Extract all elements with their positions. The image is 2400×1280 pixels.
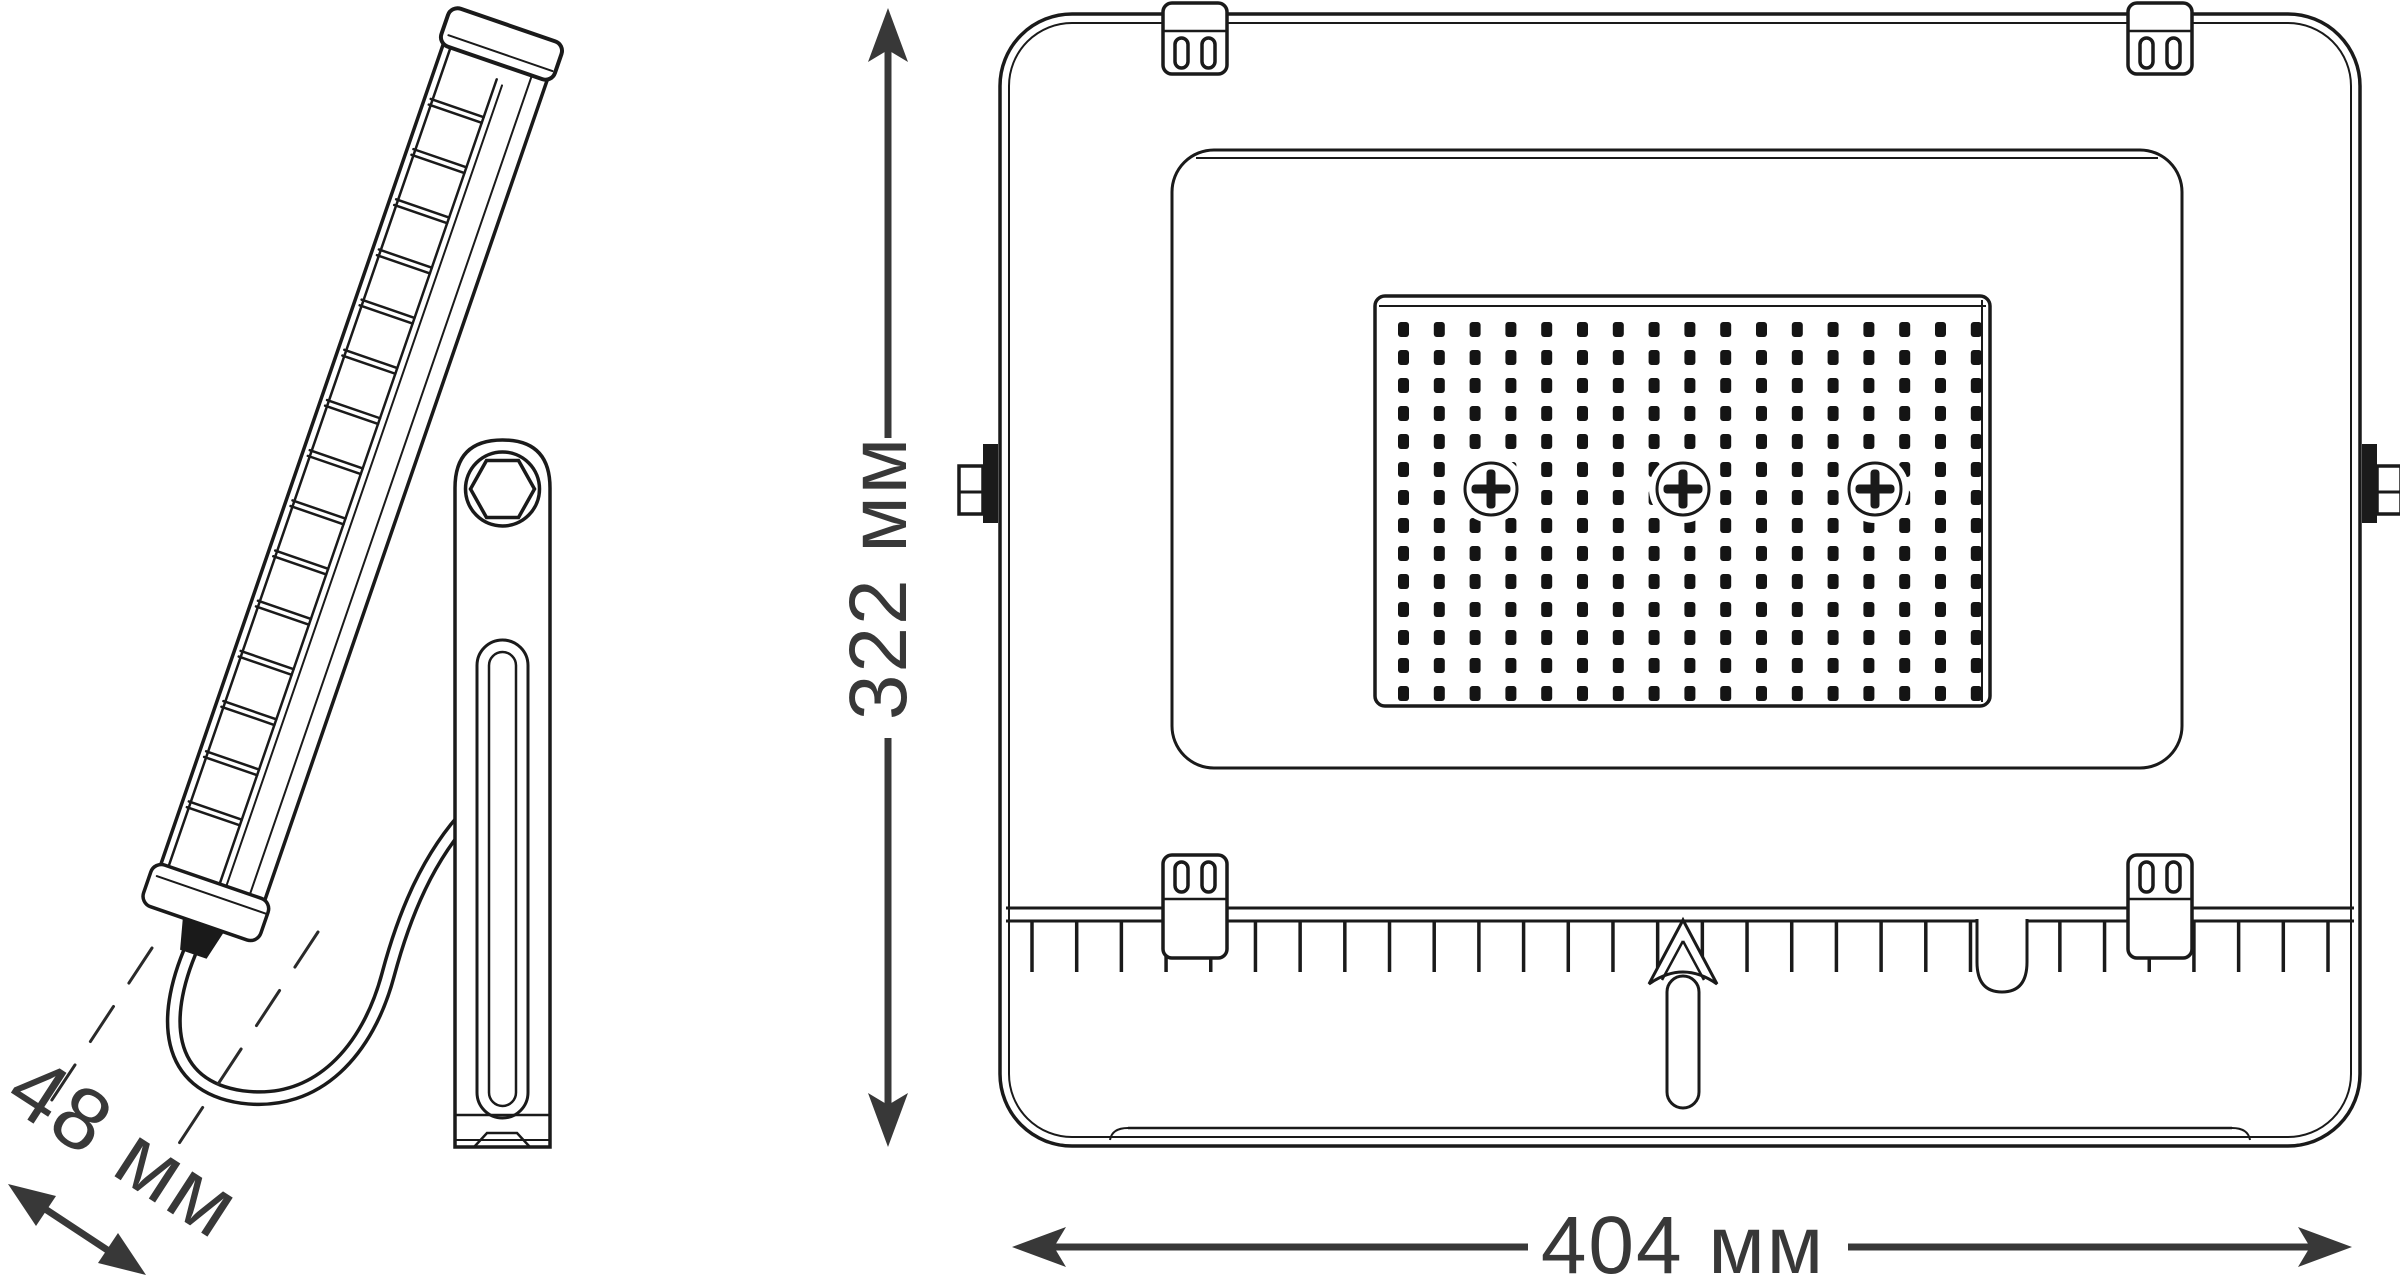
- depth-dimension: 48 мм: [0, 1036, 258, 1275]
- mounting-clip-top-left: [1163, 3, 1227, 74]
- width-dimension: 404 мм: [1012, 1200, 2352, 1280]
- floodlight-dimensional-drawing: 48 мм 322 мм: [0, 0, 2400, 1280]
- left-trunnion-pivot: [959, 444, 998, 523]
- bottom-cable-gland: [1977, 919, 2027, 992]
- phillips-screw-icon: [1649, 455, 1717, 523]
- height-dimension: 322 мм: [833, 8, 924, 1147]
- phillips-screw-icon: [1457, 455, 1525, 523]
- mounting-clip-top-right: [2128, 3, 2192, 74]
- front-view: [959, 3, 2400, 1146]
- mounting-bracket: [455, 440, 550, 1147]
- depth-dimension-label: 48 мм: [0, 1036, 258, 1257]
- mounting-clip-bottom-right: [2128, 855, 2192, 958]
- right-trunnion-pivot: [2362, 444, 2400, 523]
- phillips-screw-icon: [1841, 455, 1909, 523]
- led-panel: [1375, 296, 1990, 706]
- width-dimension-label: 404 мм: [1541, 1200, 1825, 1280]
- height-dimension-label: 322 мм: [833, 436, 924, 720]
- side-view: [40, 5, 567, 1147]
- mounting-clip-bottom-left: [1163, 855, 1227, 958]
- hex-bolt-icon: [466, 452, 540, 526]
- technical-drawing-page: 48 мм 322 мм: [0, 0, 2400, 1280]
